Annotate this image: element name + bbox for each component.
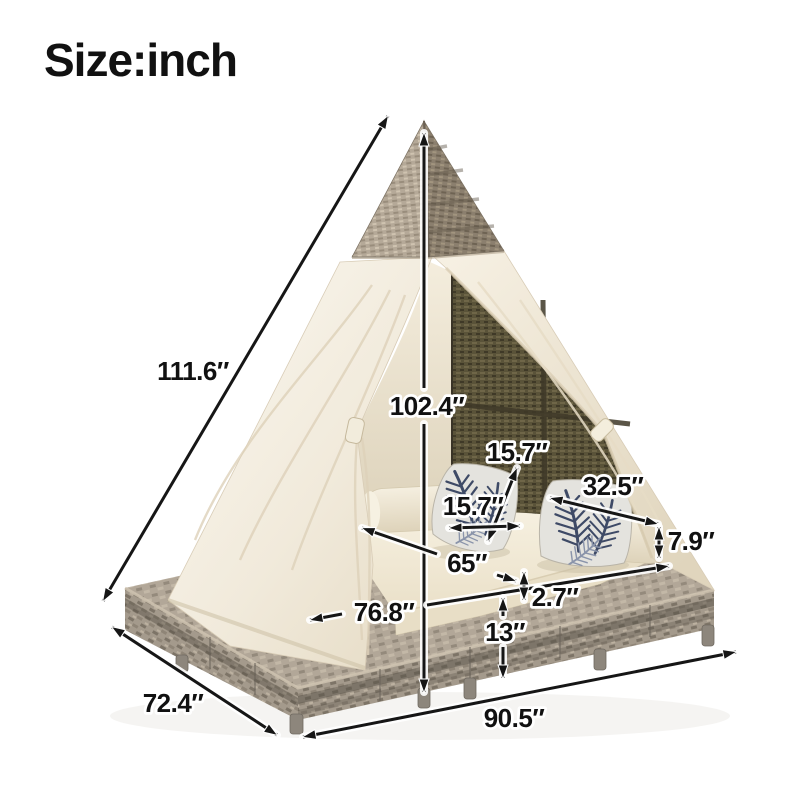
dimension-side-slant-label: 111.6″ [157, 356, 229, 386]
dimension-base-height-label: 13″ [485, 617, 525, 647]
dimension-cushion-thickness: 7.9″ [659, 526, 714, 558]
dimension-deck-lip-label: 2.7″ [532, 582, 579, 612]
dimension-pillow-width-arrow [449, 526, 520, 528]
dimension-pillow-side-label: 15.7″ [487, 437, 548, 467]
canopy-left-face [352, 121, 429, 257]
page-title: Size:inch [44, 34, 237, 86]
tent-diagram-canvas: 111.6″ 102.4″ 15.7″ 15.7″ 32.5″ 7.9″ [0, 0, 800, 800]
dimension-cushion-thickness-label: 7.9″ [668, 526, 715, 556]
dimension-tent-height-label: 102.4″ [390, 391, 465, 421]
dimension-backrest-depth-label: 32.5″ [583, 471, 644, 501]
canopy-right-face [424, 121, 504, 257]
product-dimension-diagram: 111.6″ 102.4″ 15.7″ 15.7″ 32.5″ 7.9″ [0, 0, 800, 800]
dimension-pillow-width-label: 15.7″ [443, 491, 504, 521]
dimension-side-depth-label: 72.4″ [143, 688, 204, 718]
dimension-overall-width-label: 90.5″ [484, 703, 545, 733]
dimension-bed-length-label: 65″ [447, 548, 487, 578]
dimension-inner-width-label: 76.8″ [354, 597, 415, 627]
